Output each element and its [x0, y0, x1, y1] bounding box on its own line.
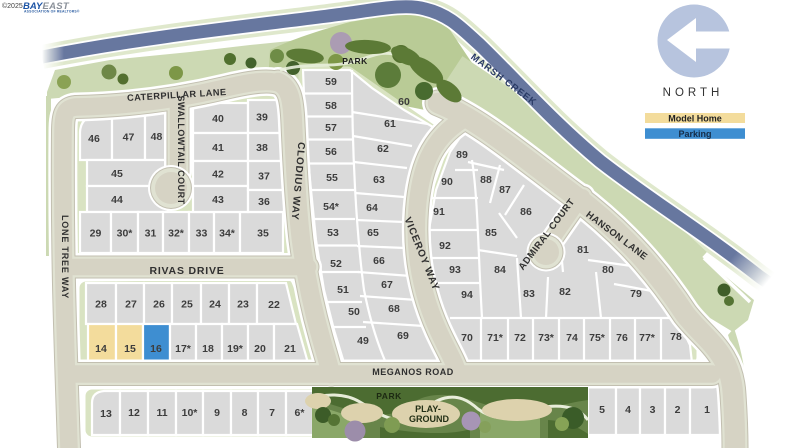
svg-text:35: 35	[257, 227, 269, 239]
svg-text:44: 44	[111, 194, 123, 206]
svg-text:Parking: Parking	[678, 129, 711, 139]
svg-text:68: 68	[388, 303, 400, 315]
svg-text:64: 64	[366, 202, 378, 214]
svg-text:79: 79	[630, 288, 642, 300]
svg-text:16: 16	[150, 343, 162, 355]
svg-text:54*: 54*	[323, 201, 340, 213]
svg-text:10*: 10*	[182, 407, 199, 419]
svg-text:18: 18	[202, 343, 214, 355]
svg-text:72: 72	[514, 332, 526, 344]
svg-text:11: 11	[156, 407, 167, 419]
svg-text:83: 83	[523, 288, 535, 300]
svg-text:74: 74	[566, 332, 578, 344]
svg-text:91: 91	[433, 206, 445, 218]
svg-text:94: 94	[461, 289, 473, 301]
svg-text:26: 26	[153, 298, 165, 310]
svg-text:48: 48	[151, 131, 163, 143]
svg-text:19*: 19*	[227, 343, 244, 355]
svg-text:22: 22	[268, 299, 280, 311]
svg-text:1: 1	[704, 404, 710, 416]
svg-text:17*: 17*	[175, 343, 192, 355]
svg-text:80: 80	[602, 264, 614, 276]
svg-text:2: 2	[675, 404, 681, 416]
svg-text:23: 23	[237, 298, 249, 310]
svg-text:53: 53	[327, 227, 339, 239]
svg-text:42: 42	[212, 168, 224, 180]
svg-text:77*: 77*	[639, 332, 656, 344]
svg-text:49: 49	[357, 335, 369, 347]
svg-text:85: 85	[485, 227, 497, 239]
svg-text:66: 66	[373, 255, 385, 267]
svg-text:33: 33	[196, 227, 208, 239]
svg-text:SWALLOWTAIL COURT: SWALLOWTAIL COURT	[176, 95, 186, 204]
svg-text:55: 55	[326, 172, 338, 184]
svg-text:34*: 34*	[219, 227, 236, 239]
svg-text:13: 13	[100, 408, 112, 420]
svg-text:31: 31	[145, 227, 157, 239]
svg-text:37: 37	[258, 170, 270, 182]
svg-text:36: 36	[258, 196, 270, 208]
svg-text:67: 67	[381, 279, 393, 291]
svg-text:70: 70	[461, 332, 473, 344]
svg-text:7: 7	[269, 407, 275, 419]
svg-text:57: 57	[325, 122, 337, 134]
svg-text:86: 86	[520, 206, 532, 218]
svg-text:87: 87	[499, 184, 511, 196]
svg-text:63: 63	[373, 174, 385, 186]
svg-text:15: 15	[124, 343, 136, 355]
svg-text:47: 47	[123, 131, 135, 143]
svg-text:82: 82	[559, 286, 571, 298]
svg-text:MEGANOS ROAD: MEGANOS ROAD	[372, 367, 454, 377]
svg-text:43: 43	[212, 194, 224, 206]
svg-text:RIVAS DRIVE: RIVAS DRIVE	[149, 265, 224, 277]
svg-text:32*: 32*	[168, 227, 185, 239]
svg-text:30*: 30*	[117, 227, 134, 239]
svg-text:NORTH: NORTH	[663, 87, 724, 99]
svg-text:Model Home: Model Home	[668, 113, 722, 123]
svg-text:25: 25	[181, 298, 193, 310]
svg-text:88: 88	[480, 174, 492, 186]
svg-text:92: 92	[439, 240, 451, 252]
svg-text:©2025: ©2025	[2, 2, 23, 10]
svg-text:3: 3	[650, 404, 656, 416]
svg-text:PARK: PARK	[376, 391, 402, 401]
svg-text:ASSOCIATION OF REALTORS®: ASSOCIATION OF REALTORS®	[24, 10, 80, 14]
svg-text:21: 21	[284, 343, 296, 355]
svg-text:93: 93	[449, 264, 461, 276]
svg-text:51: 51	[337, 284, 349, 296]
svg-text:59: 59	[325, 76, 337, 88]
svg-text:20: 20	[254, 343, 266, 355]
svg-text:PARK: PARK	[342, 56, 368, 66]
svg-text:52: 52	[330, 258, 342, 270]
svg-text:58: 58	[325, 100, 337, 112]
svg-text:81: 81	[577, 244, 589, 256]
svg-text:41: 41	[212, 142, 224, 154]
svg-text:45: 45	[111, 168, 123, 180]
svg-text:61: 61	[384, 118, 396, 130]
svg-text:6*: 6*	[295, 407, 306, 419]
svg-text:27: 27	[125, 298, 137, 310]
svg-text:PLAY-: PLAY-	[415, 404, 441, 414]
svg-text:GROUND: GROUND	[409, 414, 449, 424]
svg-text:40: 40	[212, 113, 224, 125]
svg-text:9: 9	[214, 407, 220, 419]
svg-text:50: 50	[348, 306, 360, 318]
svg-text:75*: 75*	[589, 332, 606, 344]
svg-text:14: 14	[95, 343, 107, 355]
svg-text:76: 76	[616, 332, 628, 344]
svg-text:28: 28	[95, 298, 107, 310]
svg-text:38: 38	[256, 142, 268, 154]
svg-text:29: 29	[90, 227, 102, 239]
svg-text:LONE TREE WAY: LONE TREE WAY	[60, 215, 70, 299]
svg-text:90: 90	[441, 176, 453, 188]
svg-text:5: 5	[599, 404, 605, 416]
svg-text:24: 24	[209, 298, 221, 310]
svg-text:46: 46	[88, 133, 100, 145]
svg-text:62: 62	[377, 143, 389, 155]
svg-text:65: 65	[367, 227, 379, 239]
svg-text:8: 8	[242, 407, 248, 419]
svg-text:71*: 71*	[487, 332, 504, 344]
svg-text:12: 12	[128, 407, 140, 419]
svg-text:84: 84	[494, 264, 506, 276]
svg-text:60: 60	[398, 96, 410, 108]
svg-text:89: 89	[456, 149, 468, 161]
svg-text:39: 39	[256, 111, 268, 123]
svg-text:73*: 73*	[538, 332, 555, 344]
svg-text:4: 4	[625, 404, 631, 416]
svg-text:69: 69	[397, 330, 409, 342]
svg-text:56: 56	[325, 146, 337, 158]
